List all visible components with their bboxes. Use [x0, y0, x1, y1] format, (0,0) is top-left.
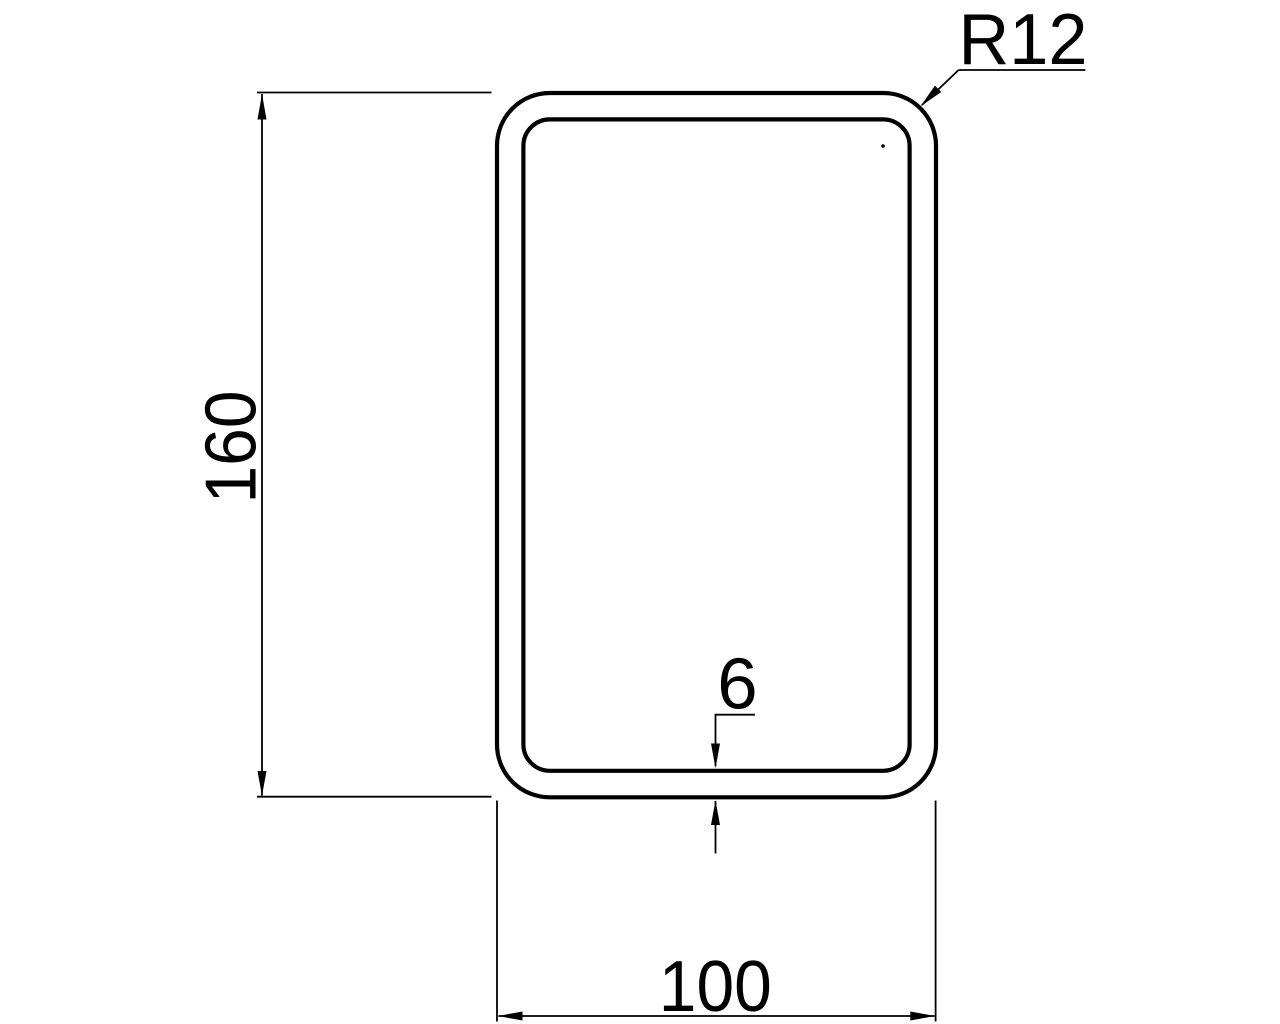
svg-text:100: 100 — [659, 946, 772, 1024]
svg-text:R12: R12 — [959, 0, 1088, 80]
svg-text:6: 6 — [717, 643, 757, 724]
svg-text:160: 160 — [191, 391, 272, 504]
